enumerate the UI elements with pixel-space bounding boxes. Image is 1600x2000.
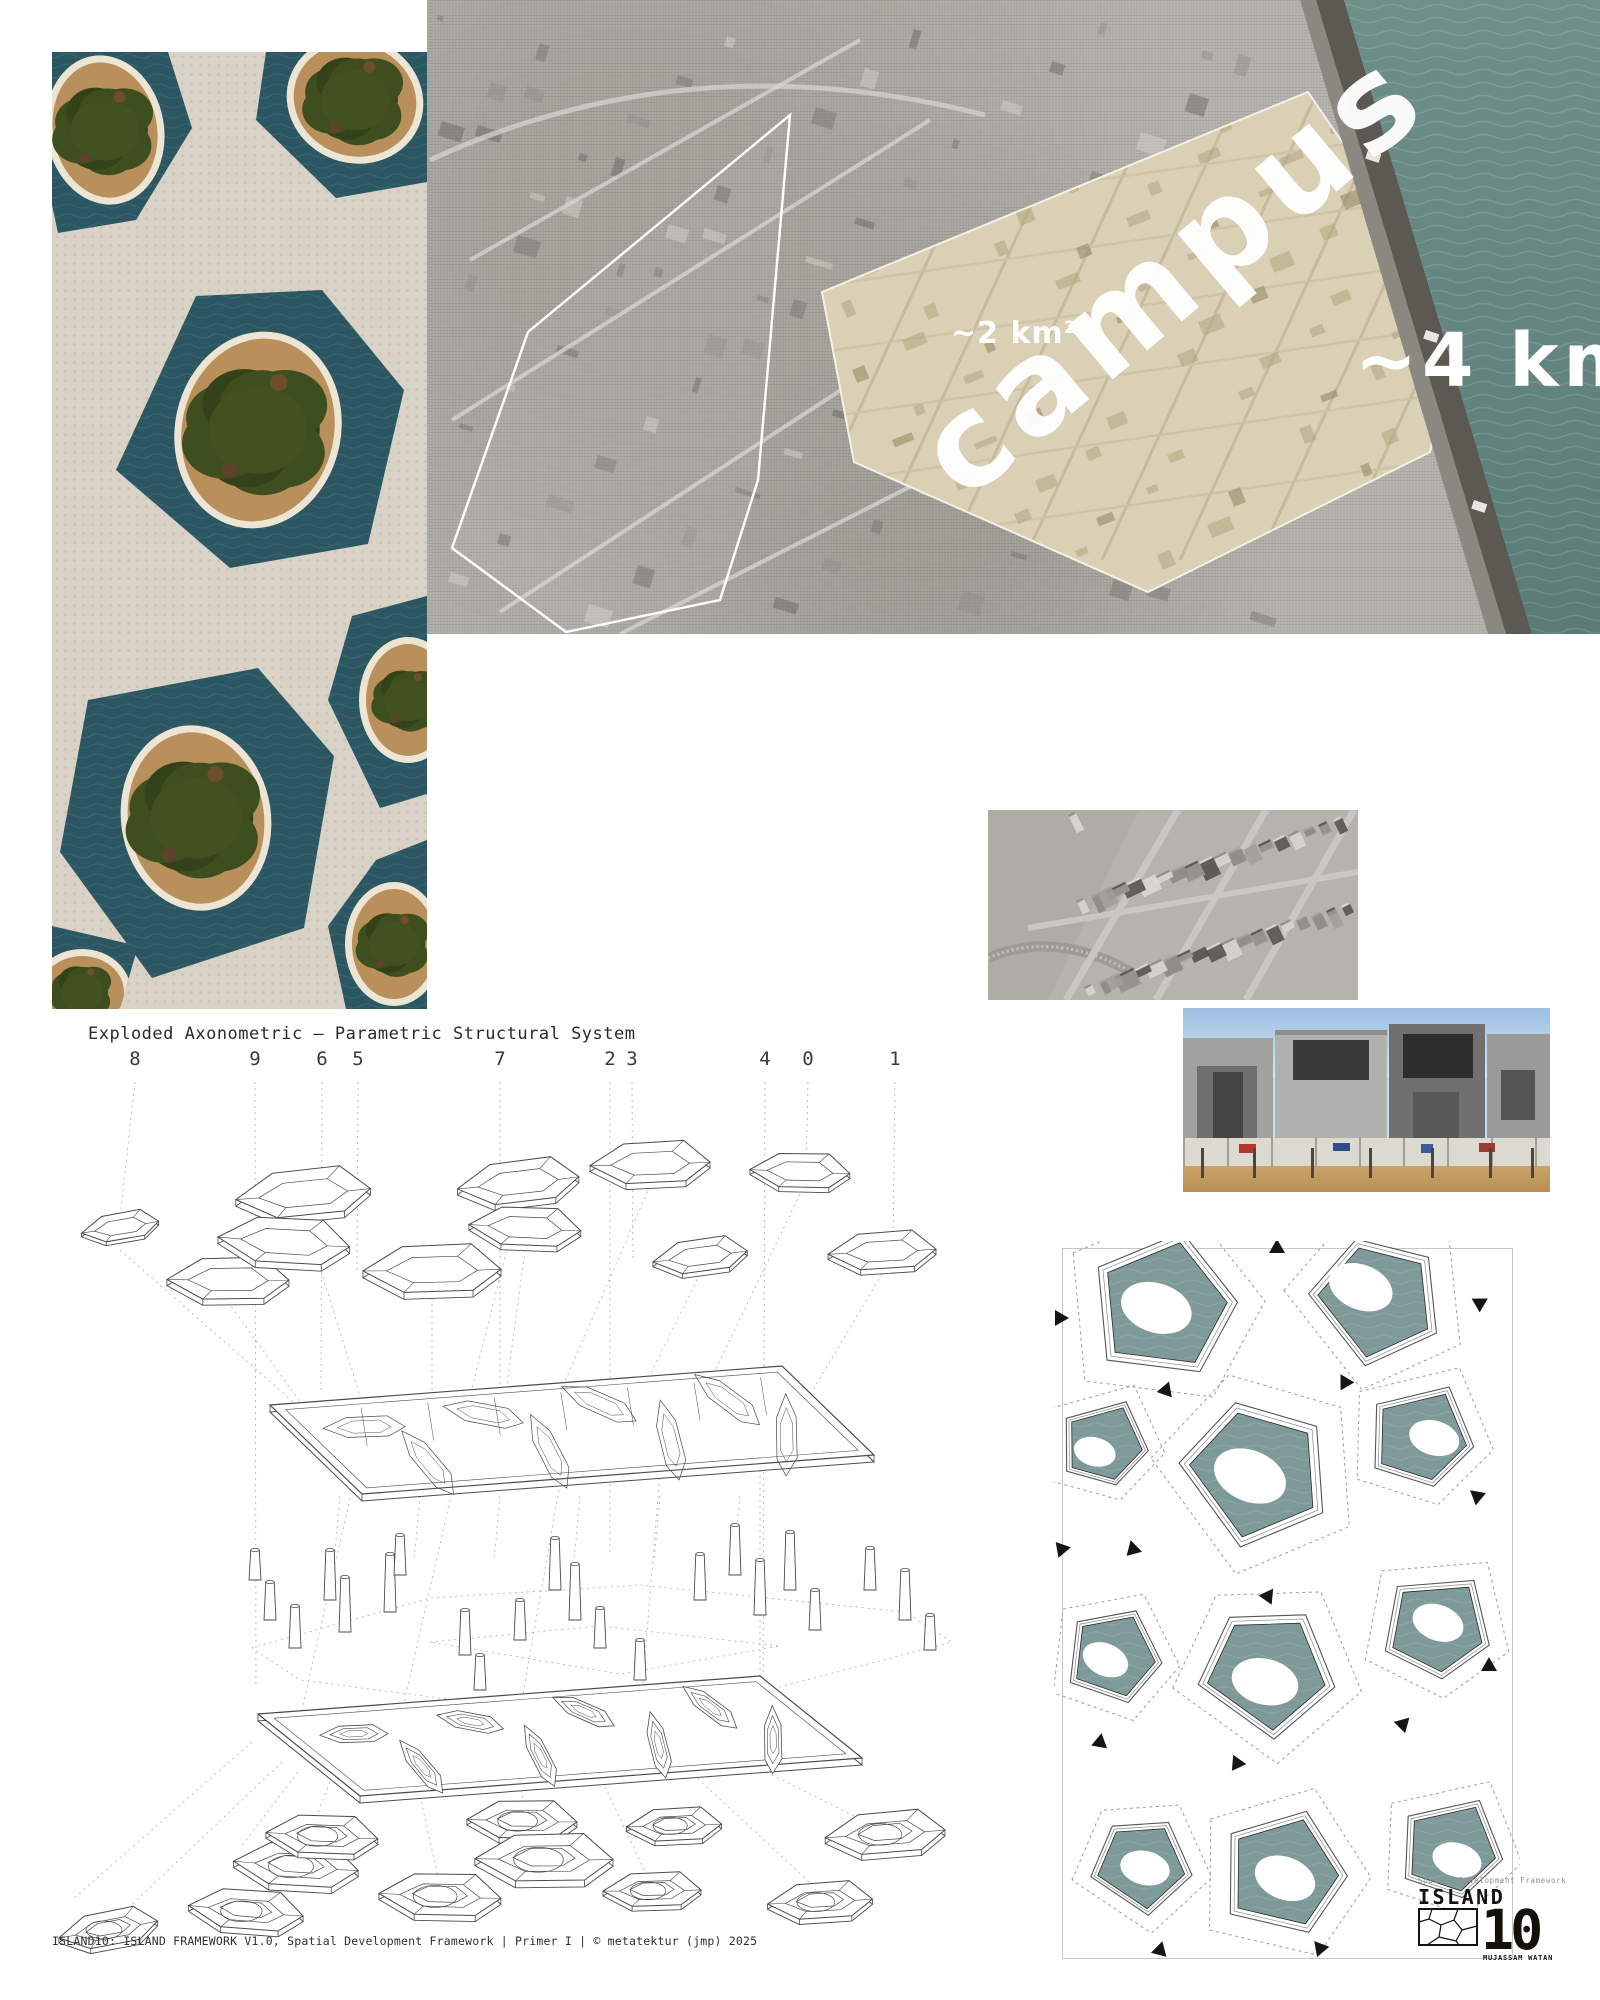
island-cells-graphic <box>52 52 427 1009</box>
fence-post <box>1489 1148 1492 1178</box>
footer-caption: ISLAND10: ISLAND FRAMEWORK V1.0, Spatial… <box>52 1934 757 1948</box>
structure-plate <box>828 1230 936 1275</box>
aerial-photo <box>988 810 1358 1000</box>
structure-plate <box>653 1236 747 1279</box>
island-plate <box>825 1809 945 1860</box>
building-opening <box>1293 1040 1369 1080</box>
island-plate <box>603 1872 701 1911</box>
fence-post <box>1311 1148 1314 1178</box>
ground-deck <box>258 1676 862 1803</box>
voronoi-icon <box>1418 1908 1478 1946</box>
parcel-plan-graphic <box>1054 1241 1520 1966</box>
fence-post <box>1431 1148 1434 1178</box>
fence-sign <box>1479 1143 1495 1152</box>
campus-area-label: ~2 km² <box>951 316 1078 351</box>
campus-boundary <box>452 115 790 632</box>
island-render-panel <box>52 52 427 1009</box>
canopy-deck <box>270 1366 874 1501</box>
island-plate <box>379 1874 501 1922</box>
fence-post <box>1253 1148 1256 1178</box>
building-opening <box>1413 1092 1459 1140</box>
satellite-map-panel: campus ~2 km² ~4 km² Island10 M METATEKT… <box>427 0 1600 634</box>
building-opening <box>1403 1034 1473 1078</box>
structure-plate <box>457 1157 579 1211</box>
island-area-label: ~4 km² <box>1355 318 1600 404</box>
fence-post <box>1201 1148 1204 1178</box>
presentation-board: campus ~2 km² ~4 km² Island10 M METATEKT… <box>0 0 1600 2000</box>
logo-number: 10 <box>1481 1908 1553 1952</box>
fence-post <box>1531 1148 1534 1178</box>
building-opening <box>1213 1072 1243 1140</box>
structure-plate <box>82 1209 159 1245</box>
axon-drawing <box>52 1020 1012 1960</box>
structure-plate <box>469 1207 581 1252</box>
island-plate <box>768 1881 873 1925</box>
aerial-photo-graphic <box>988 810 1358 1000</box>
parcel-plan-panel <box>1054 1241 1520 1966</box>
island-plate <box>189 1889 304 1937</box>
island10-logo-block: Spatial Development Framework ISLAND 10 … <box>1418 1876 1578 1962</box>
exploded-axonometric-panel: Exploded Axonometric – Parametric Struct… <box>52 1020 1012 1960</box>
fence-sign <box>1333 1143 1350 1151</box>
construction-photo <box>1183 1008 1550 1192</box>
logo-eyebrow: Spatial Development Framework <box>1418 1876 1578 1885</box>
structure-plate <box>363 1244 501 1300</box>
fence-post <box>1369 1148 1372 1178</box>
pile-field <box>249 1523 936 1690</box>
structure-plate <box>590 1140 710 1189</box>
sand-ground <box>1183 1166 1550 1192</box>
logo-subtitle: MUJASSAM WATAN <box>1483 1954 1553 1962</box>
building-opening <box>1501 1070 1535 1120</box>
island-plate <box>627 1807 722 1846</box>
structure-plate <box>750 1154 850 1193</box>
structure-plate <box>236 1166 371 1225</box>
